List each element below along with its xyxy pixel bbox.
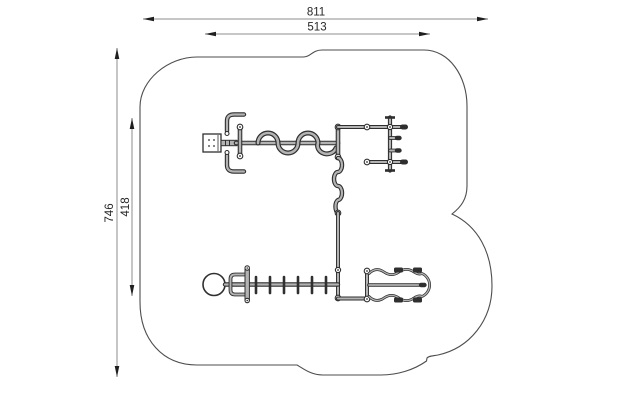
horizontal-ladder <box>225 266 338 303</box>
dim-label-513: 513 <box>307 22 326 34</box>
arrowhead-top <box>115 48 120 59</box>
main-post-line <box>335 213 341 301</box>
arrowhead-bottom <box>115 366 120 377</box>
wavy-climbing-pole <box>334 158 342 216</box>
plan-drawing-canvas: 811 513 746 418 <box>0 0 638 402</box>
plan-drawing: 811 513 746 418 <box>0 0 638 402</box>
arrowhead-top <box>130 118 135 129</box>
dimension-top-outer: 811 <box>143 7 488 22</box>
dimension-left-outer: 746 <box>104 48 119 377</box>
arrowhead-left <box>205 32 216 37</box>
dim-label-811: 811 <box>307 7 325 19</box>
dimension-top-inner: 513 <box>205 22 430 37</box>
activity-panel <box>203 134 221 152</box>
arrowhead-left <box>143 17 154 22</box>
arrowhead-right <box>419 32 430 37</box>
steering-wheel <box>203 274 225 296</box>
entry-frame-rungs <box>338 118 406 171</box>
crossbar <box>237 124 243 159</box>
dim-label-746: 746 <box>104 203 116 222</box>
dimension-left-inner: 418 <box>120 118 134 296</box>
corner-post <box>335 124 341 160</box>
arrowhead-bottom <box>130 285 135 296</box>
arrowhead-right <box>477 17 488 22</box>
safety-area-outline <box>140 50 492 375</box>
dim-label-418: 418 <box>120 197 132 216</box>
wobble-bridge <box>338 268 430 303</box>
